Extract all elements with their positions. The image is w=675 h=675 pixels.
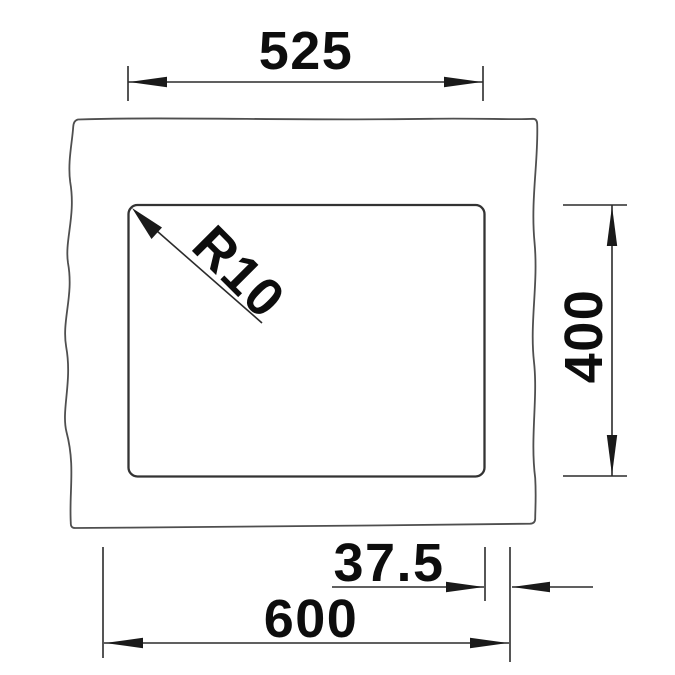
bowl-cutout-outline (129, 205, 485, 477)
technical-drawing-page: 525 R10 400 37.5 (0, 0, 675, 675)
arrowhead-left-icon (129, 77, 167, 87)
dimension-cutout-width: 525 (128, 21, 483, 101)
arrowhead-left-icon (512, 582, 550, 592)
dimension-overall-width: 600 (103, 547, 509, 658)
sink-dimension-drawing-canvas: 525 R10 400 37.5 (0, 0, 675, 675)
arrowhead-left-icon (105, 638, 143, 648)
arrowhead-down-icon (607, 435, 617, 475)
dimension-label-overall-width: 600 (264, 589, 359, 649)
dimension-bowl-height: 400 (554, 205, 627, 476)
arrowhead-up-icon (607, 206, 617, 246)
arrowhead-right-icon (444, 77, 482, 87)
dimension-label-cutout-width: 525 (259, 21, 354, 81)
dimension-label-edge-offset: 37.5 (333, 533, 444, 593)
dimension-label-bowl-height: 400 (554, 289, 614, 384)
arrowhead-right-icon (470, 638, 508, 648)
arrowhead-right-icon (446, 582, 484, 592)
